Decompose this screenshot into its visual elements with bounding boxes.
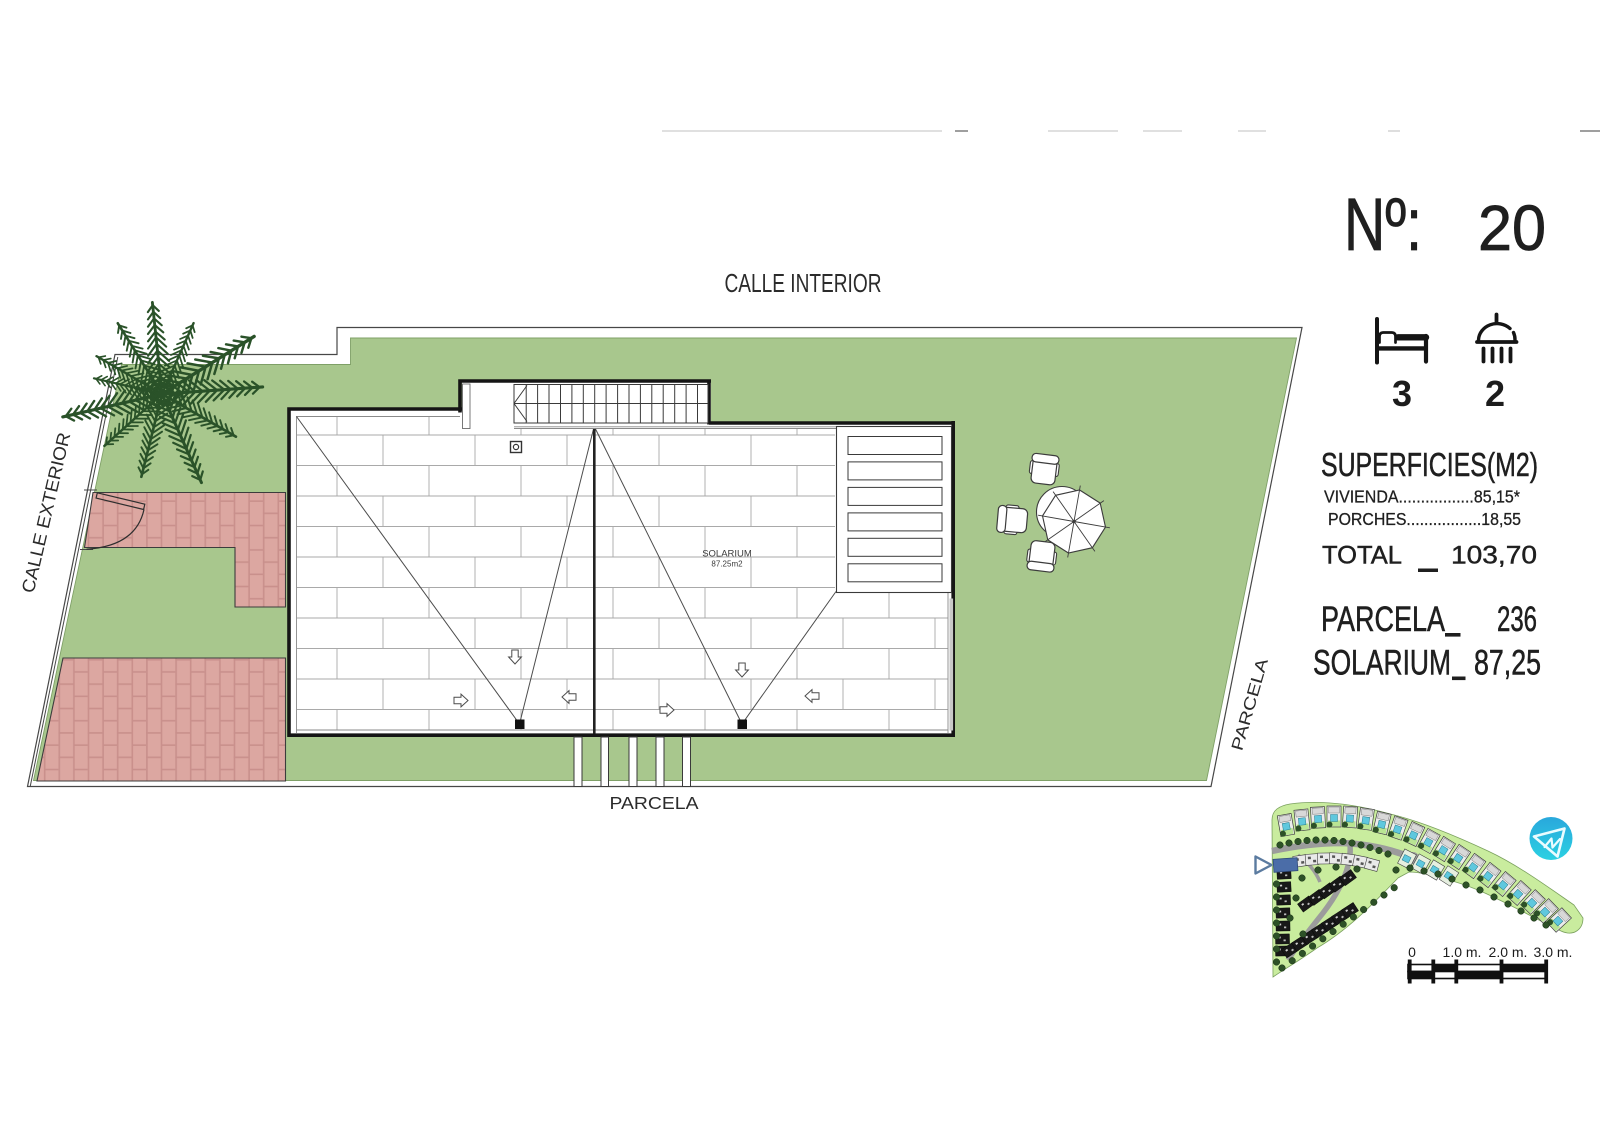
svg-text:TOTAL: TOTAL (1322, 542, 1402, 570)
svg-text:87,25: 87,25 (1474, 644, 1541, 683)
svg-text:103,70: 103,70 (1451, 542, 1537, 570)
svg-text:20: 20 (1478, 192, 1546, 264)
svg-text:PARCELA: PARCELA (610, 793, 699, 813)
svg-text:VIVIENDA.................85,15: VIVIENDA.................85,15* (1324, 487, 1520, 507)
svg-text:2: 2 (1485, 373, 1505, 414)
svg-text:236: 236 (1497, 600, 1537, 639)
svg-text:2.0 m.: 2.0 m. (1489, 944, 1528, 960)
svg-text:Nº:: Nº: (1344, 183, 1422, 266)
svg-text:3: 3 (1392, 373, 1412, 414)
svg-text:PORCHES.................18,55: PORCHES.................18,55 (1328, 509, 1521, 529)
svg-text:SUPERFICIES(M2): SUPERFICIES(M2) (1321, 446, 1538, 483)
svg-text:CALLE INTERIOR: CALLE INTERIOR (725, 268, 882, 298)
svg-text:1.0 m.: 1.0 m. (1443, 944, 1482, 960)
svg-text:0: 0 (1408, 944, 1416, 960)
svg-text:PARCELA: PARCELA (1321, 600, 1445, 639)
svg-text:SOLARIUM: SOLARIUM (702, 549, 752, 560)
svg-text:SOLARIUM: SOLARIUM (1313, 644, 1451, 683)
svg-text:87.25m2: 87.25m2 (711, 560, 743, 569)
svg-text:3.0 m.: 3.0 m. (1534, 944, 1573, 960)
